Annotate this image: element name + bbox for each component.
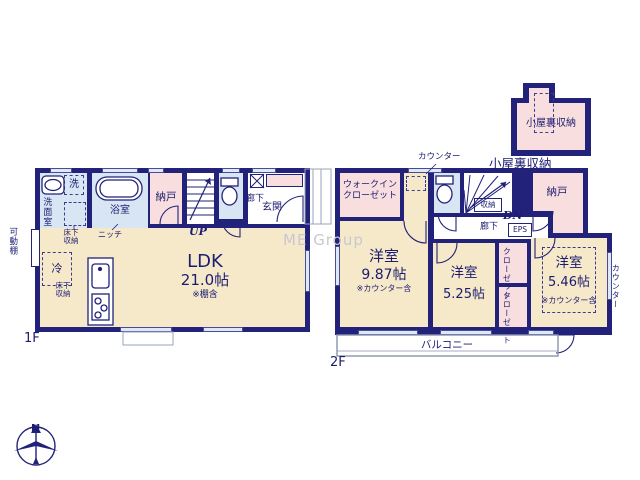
washer-label: 洗 xyxy=(69,179,79,191)
window xyxy=(335,246,340,286)
eps-label: EPS xyxy=(513,226,527,235)
window xyxy=(50,168,72,173)
window xyxy=(120,327,172,332)
stair-storage-label: 収納 xyxy=(481,201,496,210)
floorplan-canvas: 洗 冷 収納 EPS xyxy=(0,0,640,480)
eps-box: EPS xyxy=(508,223,532,237)
window xyxy=(222,168,240,173)
stairs-down-label: DN xyxy=(503,210,523,223)
window xyxy=(408,168,442,173)
washroom-label: 洗面室 xyxy=(41,197,51,227)
bedroom-a-note-label: ※カウンター含 xyxy=(357,284,412,293)
underfloor-storage-label-a: 床下収納 xyxy=(62,229,80,246)
room-bedroom-b xyxy=(433,243,495,327)
window xyxy=(252,168,276,173)
bedroom-c-note-label: ※カウンター含 xyxy=(542,296,597,305)
bedroom-c-name-label: 洋室 xyxy=(556,256,583,272)
underfloor-storage-label-b: 床下収納 xyxy=(54,282,72,299)
bedroom-b-name-label: 洋室 xyxy=(451,266,478,282)
entrance-counter xyxy=(266,174,303,187)
wic-label-line2: クローゼット xyxy=(343,191,397,201)
movable-shelf-slot xyxy=(31,229,40,267)
room-toilet-2f xyxy=(434,173,460,213)
window xyxy=(203,327,243,332)
window xyxy=(528,330,554,335)
attic-access-label: 小屋裏収納 xyxy=(489,157,552,171)
bedroom-a-size-label: 9.87帖 xyxy=(361,267,406,283)
window xyxy=(102,168,138,173)
storage-2f-label: 納戸 xyxy=(547,186,568,198)
entrance-label: 玄関 xyxy=(262,202,282,214)
window xyxy=(148,168,164,173)
washer-icon: 洗 xyxy=(64,175,84,195)
watermark: ME Group xyxy=(283,232,364,249)
window xyxy=(358,330,418,335)
counter-top-label: カウンター xyxy=(418,153,461,163)
movable-shelf-label: 可動棚 xyxy=(7,227,17,256)
stairs-up-label: UP xyxy=(189,226,207,239)
hallway-2f-label: 廊下 xyxy=(480,222,498,232)
bathroom-label: 浴室 xyxy=(110,205,130,217)
fridge-label: 冷 xyxy=(52,263,63,276)
window xyxy=(305,250,310,292)
door-arc-balcony xyxy=(556,335,574,353)
bedroom-b-size-label: 5.25帖 xyxy=(443,288,485,303)
window xyxy=(440,330,492,335)
ldk-name-label: LDK xyxy=(187,252,223,273)
balcony-label: バルコニー xyxy=(421,339,473,351)
counter-right-label: カウンター xyxy=(611,264,620,309)
attic-room-label: 小屋裏収納 xyxy=(526,118,576,130)
niche-label: ニッチ xyxy=(98,230,122,239)
shoe-cabinet-icon xyxy=(250,174,264,188)
storage-1f-label: 納戸 xyxy=(156,191,177,203)
floor2-label: 2F xyxy=(330,356,346,371)
room-bathroom xyxy=(92,173,148,228)
room-toilet-1f xyxy=(219,173,243,219)
bedroom-c-size-label: 5.46帖 xyxy=(548,276,590,291)
closet-b-label: クローゼット xyxy=(502,291,510,325)
wic-label-line1: ウォークイン xyxy=(343,180,397,190)
compass-north-label: N xyxy=(31,423,40,436)
underfloor-storage-hatch xyxy=(64,202,86,226)
ldk-size-label: 21.0帖 xyxy=(181,272,229,289)
ldk-note-label: ※棚含 xyxy=(192,290,218,300)
room-storage-2f-ext xyxy=(553,211,583,233)
closet-a-label: クローゼット xyxy=(502,247,510,281)
stair-storage-box: 収納 xyxy=(474,198,502,212)
terrace-step xyxy=(123,332,173,345)
floor1-label: 1F xyxy=(24,332,40,347)
counter-area-bedroom-a xyxy=(406,176,426,191)
stairs-1f-area xyxy=(187,173,214,224)
bedroom-a-name-label: 洋室 xyxy=(369,248,399,265)
